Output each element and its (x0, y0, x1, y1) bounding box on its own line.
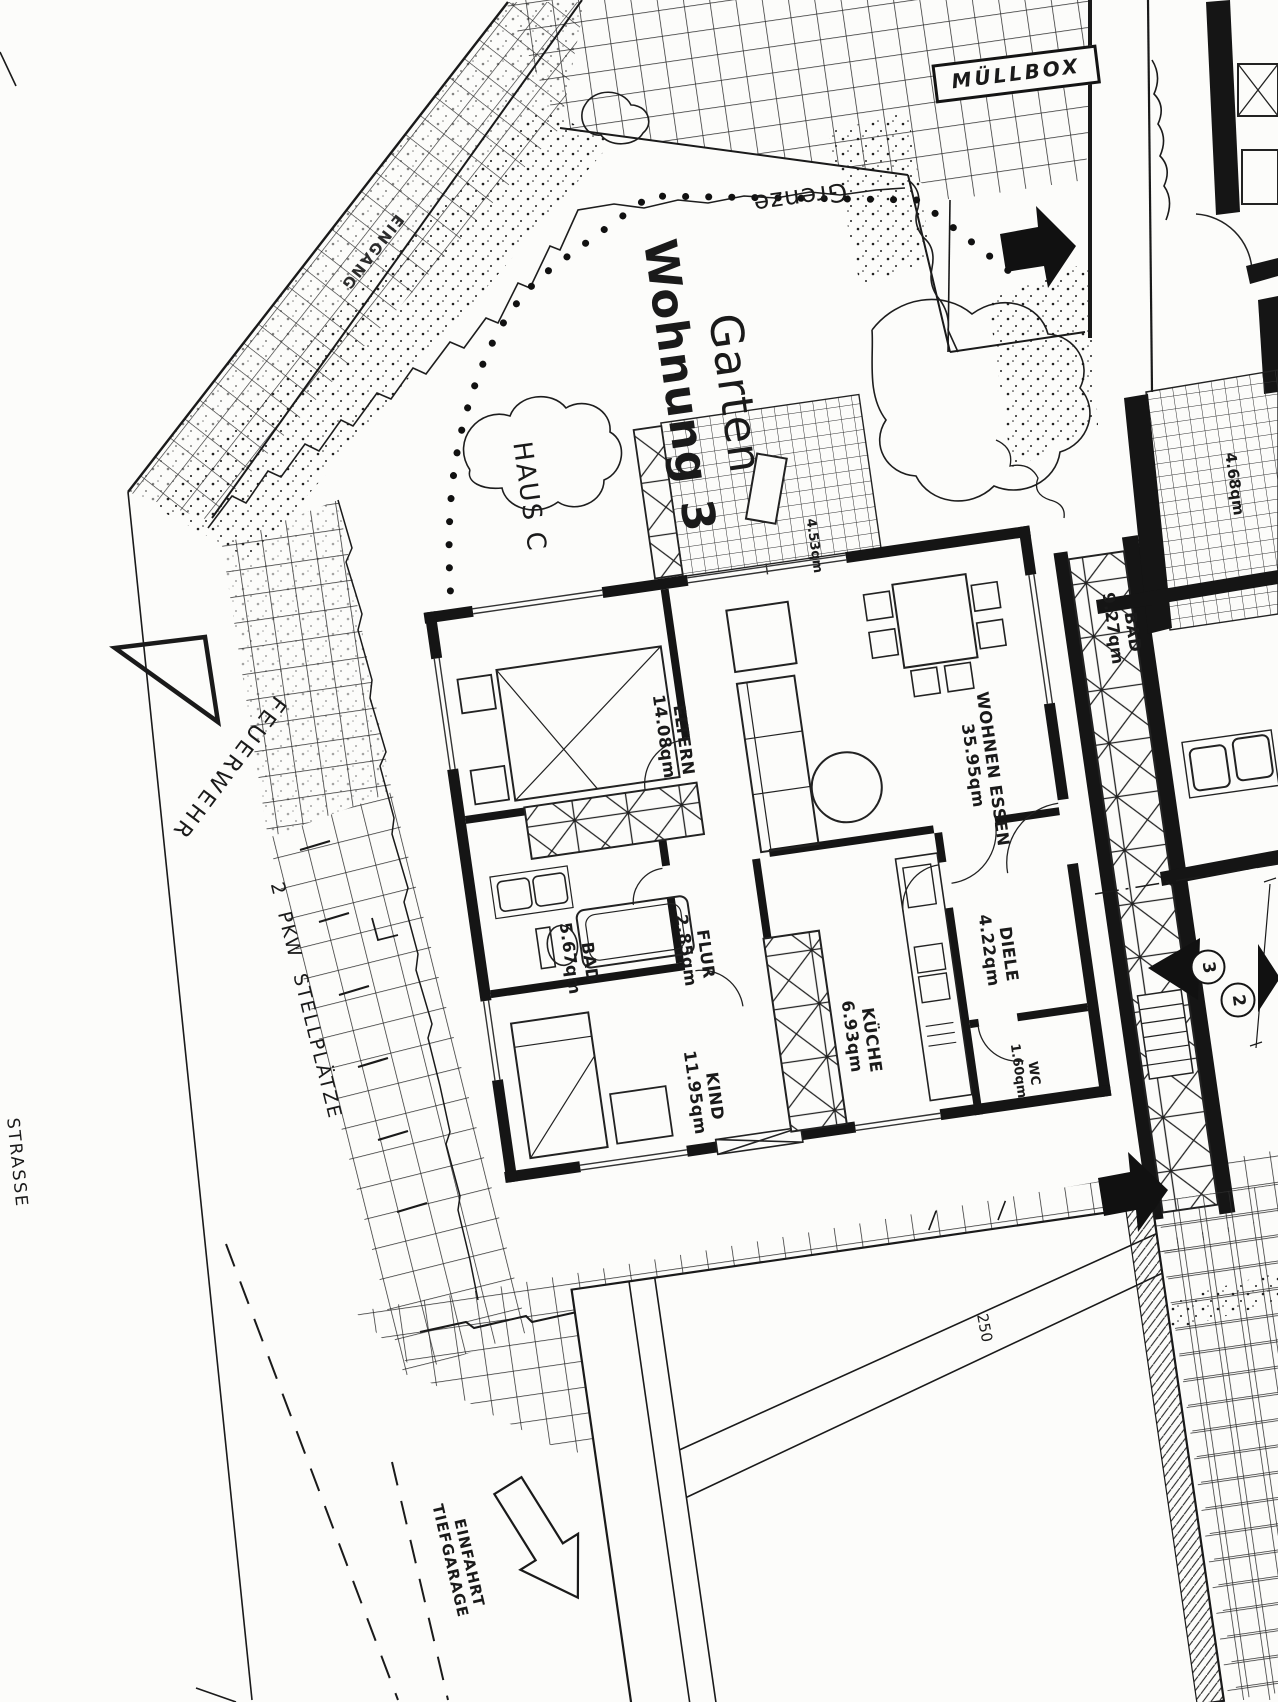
interior-walls (437, 538, 1101, 1181)
x-window (716, 1127, 803, 1154)
paving-top-apron (505, 0, 1092, 200)
room-label-kind: KIND11.95qm (679, 1044, 747, 1136)
windows (428, 526, 1109, 1180)
room-label-diele: DIELE4.22qm (974, 908, 1040, 988)
room-label-wc: WC1.60qm (1006, 1039, 1058, 1100)
outer-walls (424, 526, 1112, 1183)
wohnung-3-badge: 3 (1191, 950, 1226, 985)
muellbox-text: MÜLLBOX (950, 54, 1082, 94)
garten-wohnung3-label: GartenWohnung 3 (579, 221, 834, 543)
room-label-flur: FLUR2.85qm (671, 908, 737, 988)
wohnung-2-badge: 2 (1221, 983, 1256, 1018)
room-label-bad: BAD5.67qm (555, 916, 621, 996)
floorplan-sheet: MÜLLBOX Grenze GartenWohnung 3 HAUS C EL… (0, 0, 1278, 1702)
room-label-kueche: KÜCHE6.93qm (836, 991, 903, 1076)
room-label-bad-og: BAD9.27qm (1098, 586, 1164, 666)
arrow-wohnung2-door (1258, 944, 1278, 1012)
room-label-eltern: ELTERN14.08qm (648, 688, 716, 780)
paving-parking (268, 792, 528, 1376)
